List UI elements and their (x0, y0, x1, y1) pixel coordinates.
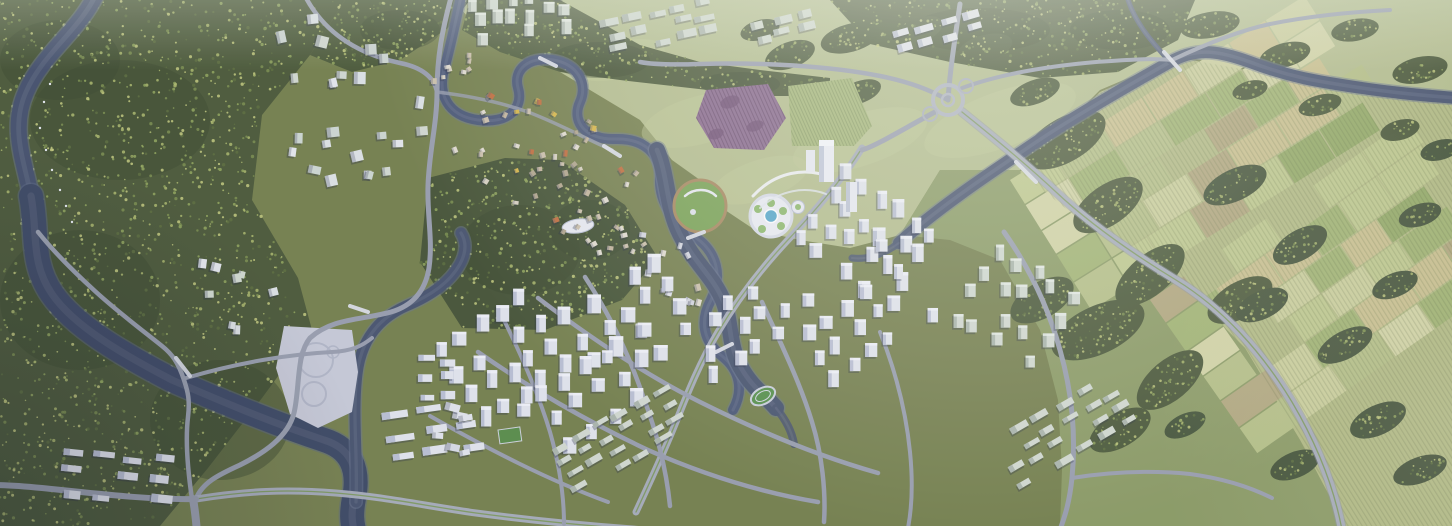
aerial-masterplan-photo (0, 0, 1452, 526)
scene-canvas (0, 0, 1452, 526)
cool-tint-overlay (0, 0, 1452, 526)
